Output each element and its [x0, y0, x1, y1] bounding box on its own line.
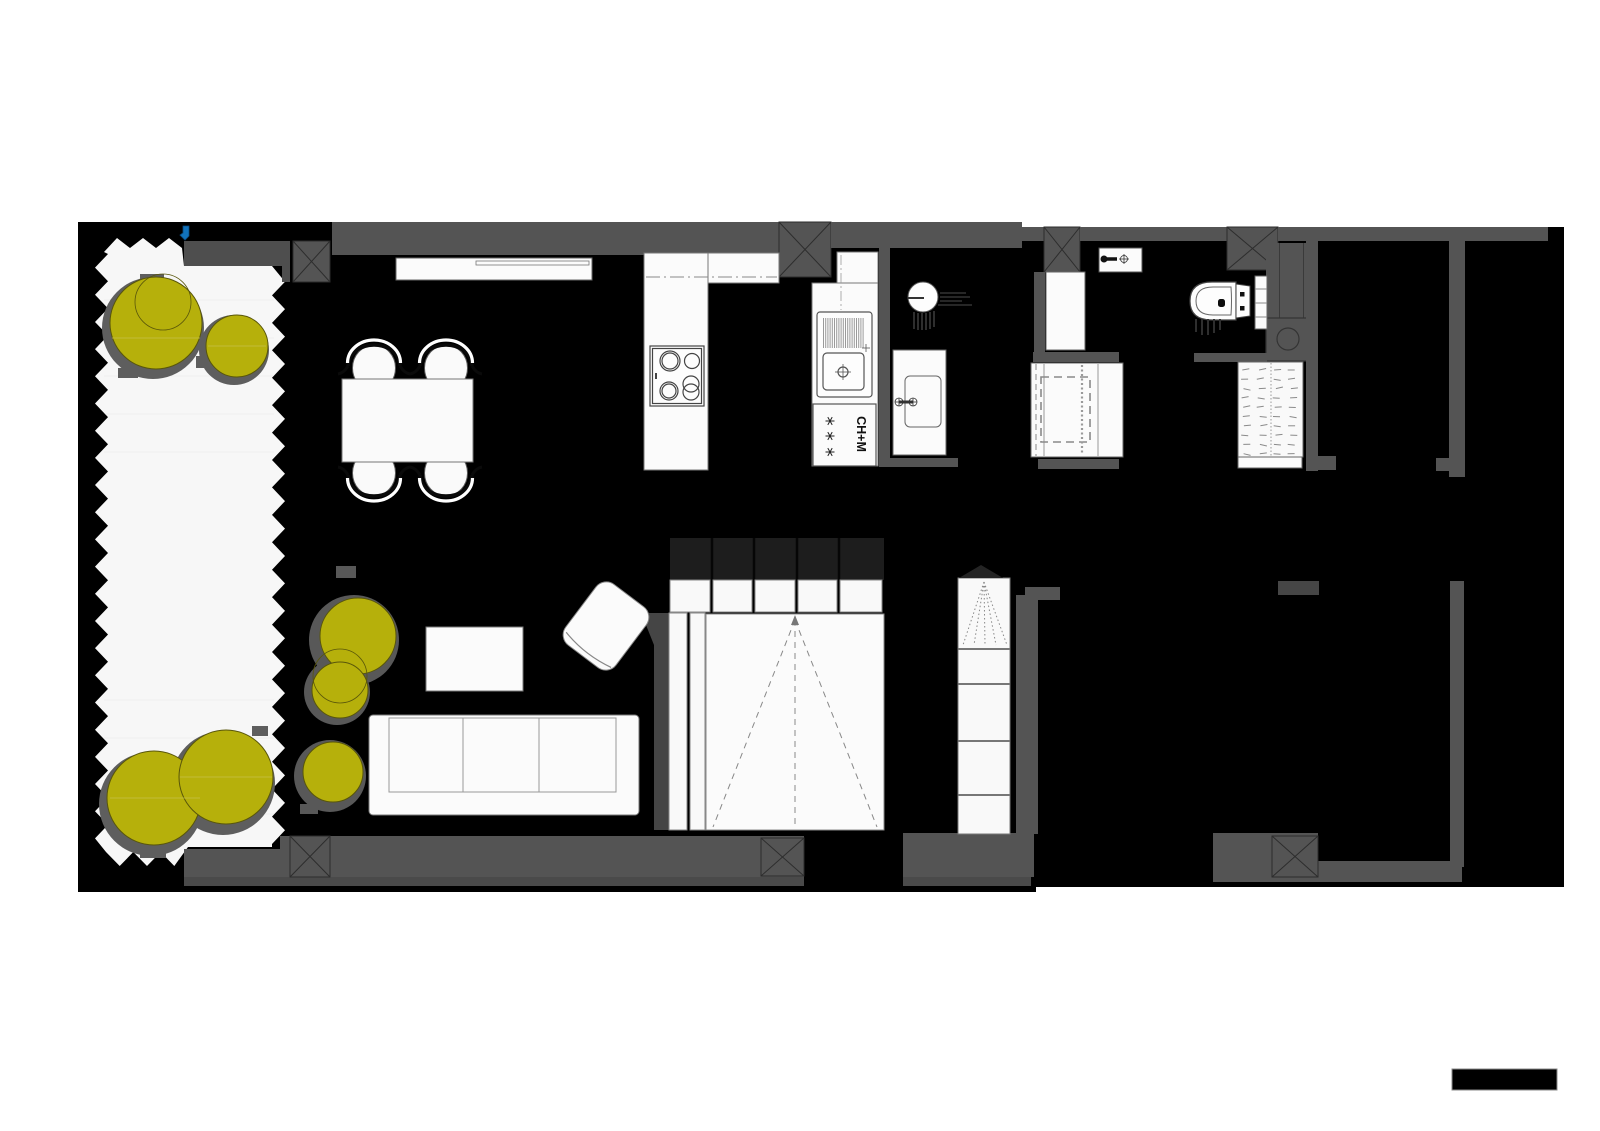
svg-text:CH+M: CH+M	[854, 416, 868, 452]
